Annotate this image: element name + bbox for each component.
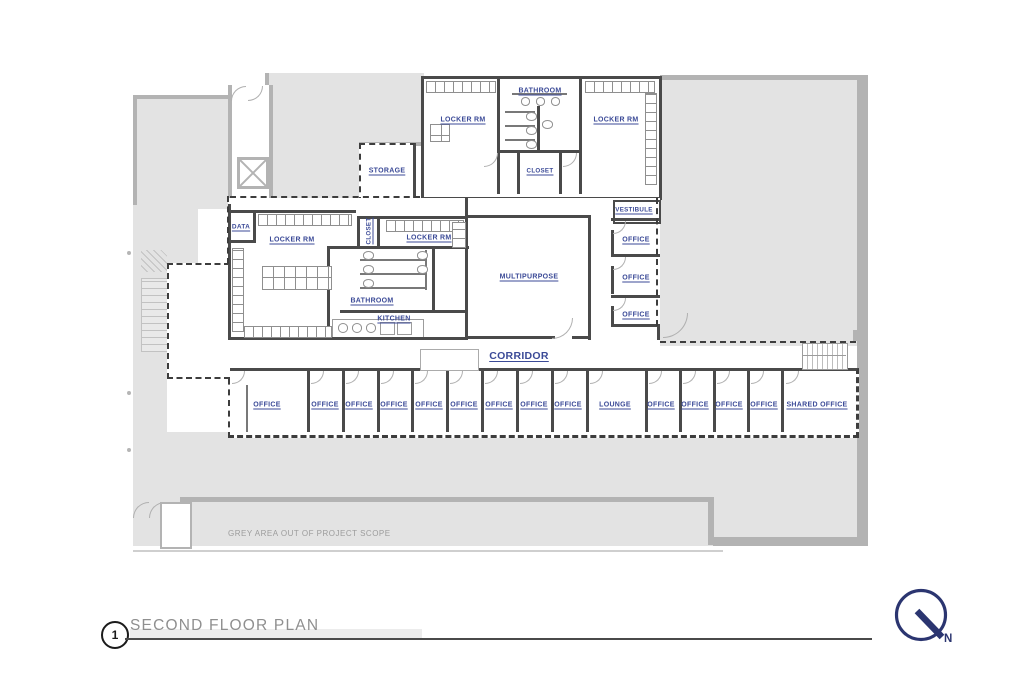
room-label-office-s7: OFFICE: [485, 402, 512, 409]
room-label-data: DATA: [232, 224, 250, 231]
room-label-office-s8: OFFICE: [520, 402, 547, 409]
floor-plan-canvas: LOCKER RMBATHROOMLOCKER RMSTORAGECLOSETV…: [0, 0, 1020, 680]
room-label-vestibule: VESTIBULE: [615, 207, 652, 214]
stairs: [141, 250, 167, 272]
room-label-office-s12: OFFICE: [715, 402, 742, 409]
room-label-kitchen: KITCHEN: [377, 316, 410, 323]
room-label-office-east-3: OFFICE: [622, 312, 649, 319]
room-label-office-s10: OFFICE: [647, 402, 674, 409]
room-label-office-east-2: OFFICE: [622, 275, 649, 282]
room-label-office-s13: OFFICE: [750, 402, 777, 409]
room-label-office-s11: OFFICE: [681, 402, 708, 409]
room-label-office-s4: OFFICE: [380, 402, 407, 409]
room-label-office-s2: OFFICE: [311, 402, 338, 409]
scope-note: GREY AREA OUT OF PROJECT SCOPE: [228, 529, 391, 538]
room-label-closet-mid: CLOSET: [366, 218, 373, 245]
room-label-bathroom-mid: BATHROOM: [350, 298, 393, 305]
room-label-multipurpose: MULTIPURPOSE: [500, 274, 559, 281]
stairs: [802, 343, 848, 370]
room-label-closet-top: CLOSET: [527, 168, 554, 175]
room-label-bathroom-top: BATHROOM: [518, 88, 561, 95]
room-label-office-s3: OFFICE: [345, 402, 372, 409]
svg-text:N: N: [944, 633, 952, 645]
room-label-shared-office: SHARED OFFICE: [786, 402, 847, 409]
plan-title: SECOND FLOOR PLAN: [130, 617, 319, 635]
room-label-storage: STORAGE: [369, 168, 406, 175]
room-label-office-s9: OFFICE: [554, 402, 581, 409]
room-label-locker-rm-top-left: LOCKER RM: [440, 117, 485, 124]
room-label-corridor: CORRIDOR: [489, 350, 549, 362]
room-label-locker-rm-top-right: LOCKER RM: [593, 117, 638, 124]
detail-number: 1: [112, 628, 119, 642]
room-label-office-s5: OFFICE: [415, 402, 442, 409]
room-label-office-s6: OFFICE: [450, 402, 477, 409]
room-label-lounge: LOUNGE: [599, 402, 631, 409]
room-label-office-s1: OFFICE: [253, 402, 280, 409]
room-label-office-east-1: OFFICE: [622, 237, 649, 244]
stairs: [141, 278, 170, 352]
room-label-locker-rm-mid-right: LOCKER RM: [406, 235, 451, 242]
north-arrow-icon: N: [888, 582, 964, 654]
room-label-locker-rm-mid-left: LOCKER RM: [269, 237, 314, 244]
detail-number-bubble: 1: [101, 621, 129, 649]
unlabeled-scope-notch: [167, 263, 230, 379]
